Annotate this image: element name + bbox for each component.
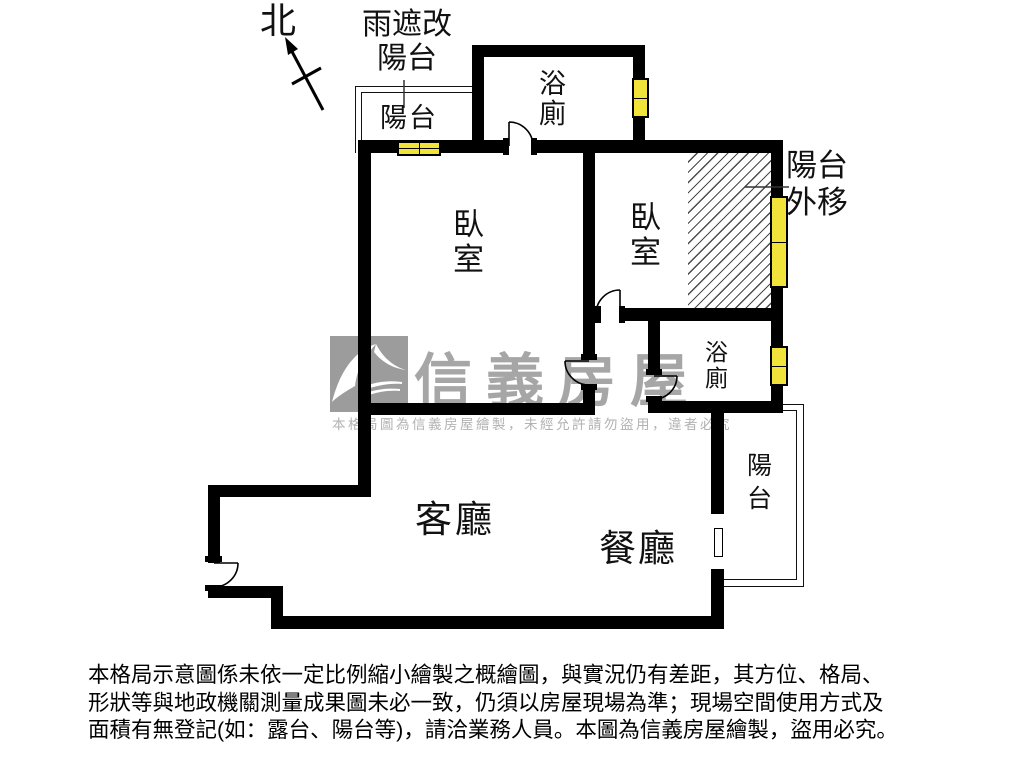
bathroom-top-label: 浴 廁 [539,70,566,130]
balcony-right-label: 陽 台 [747,450,772,515]
north-arrow-icon [285,37,323,110]
dining-room-label: 餐廳 [599,528,677,569]
living-room-label: 客廳 [415,499,495,540]
balcony-moved-label: 陽台 外移 [786,148,848,222]
disclaimer-text: 本格局示意圖係未依一定比例縮小繪製之概繪圖，與實況仍有差距，其方位、格局、 形狀… [88,662,898,745]
disclaimer-line: 形狀等與地政機關測量成果圖未必一致，仍須以房屋現場為準；現場空間使用方式及 [88,690,898,718]
floor-plan: 信義房屋 本格局圖為信義房屋繪製，未經允許請勿盜用，違者必究 [0,0,1024,768]
door-bathroom-mid [646,369,677,402]
door-bedroom-left [565,354,597,390]
north-label: 北 [260,2,296,42]
door-entrance [205,556,238,591]
balcony-top-left-label: 陽台 [380,104,438,134]
rain-cover-label: 雨遮改 陽台 [348,8,466,75]
bathroom-mid-label: 浴 廁 [705,341,728,393]
bedroom-right-label: 臥 室 [630,201,661,270]
plan-linework [0,0,1024,768]
bedroom-left-label: 臥 室 [453,208,484,277]
door-bedroom-right [595,290,625,323]
disclaimer-line: 本格局示意圖係未依一定比例縮小繪製之概繪圖，與實況仍有差距，其方位、格局、 [88,662,898,690]
door-bathroom-top [503,122,537,155]
disclaimer-line: 面積有無登記(如：露台、陽台等)，請洽業務人員。本圖為信義房屋繪製，盜用必究。 [88,717,898,745]
